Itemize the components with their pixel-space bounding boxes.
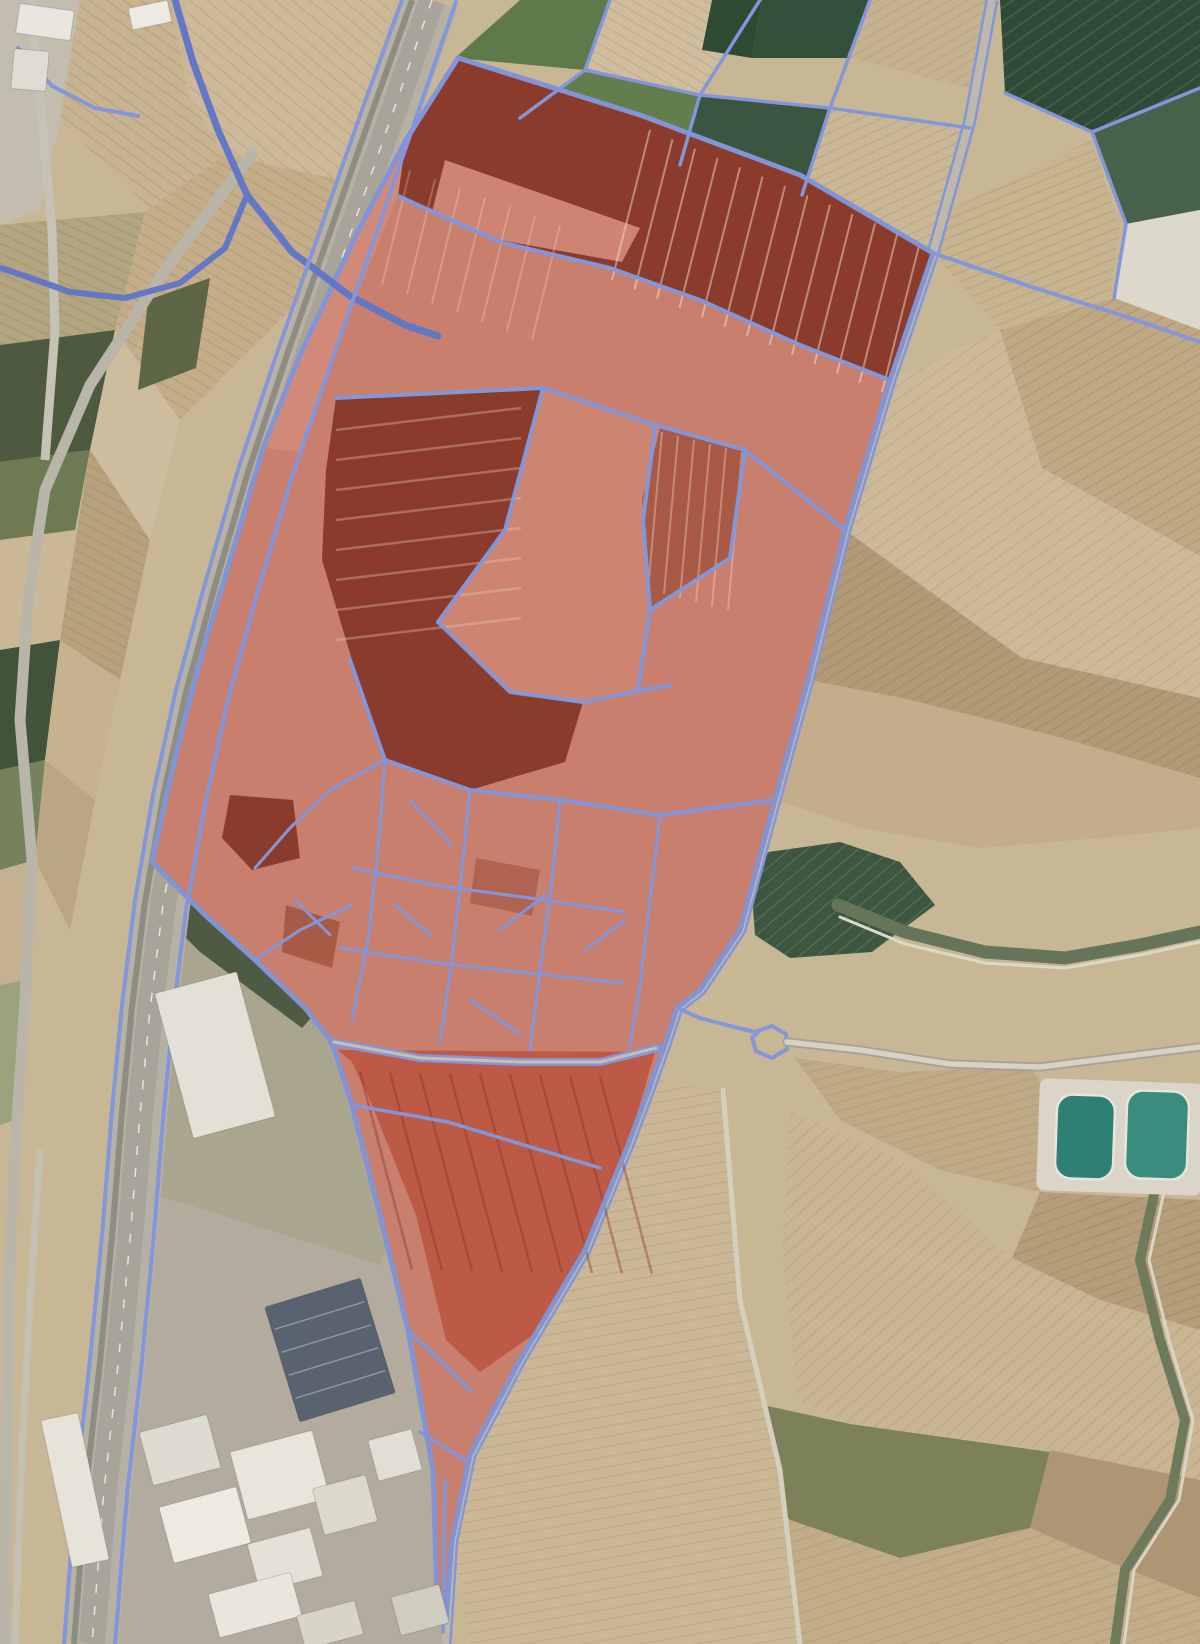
village-building (11, 49, 49, 92)
irrigation-pond (1055, 1094, 1116, 1180)
irrigation-pond (1124, 1090, 1189, 1180)
satellite-map[interactable] (0, 0, 1200, 1644)
map-canvas[interactable] (0, 0, 1200, 1644)
